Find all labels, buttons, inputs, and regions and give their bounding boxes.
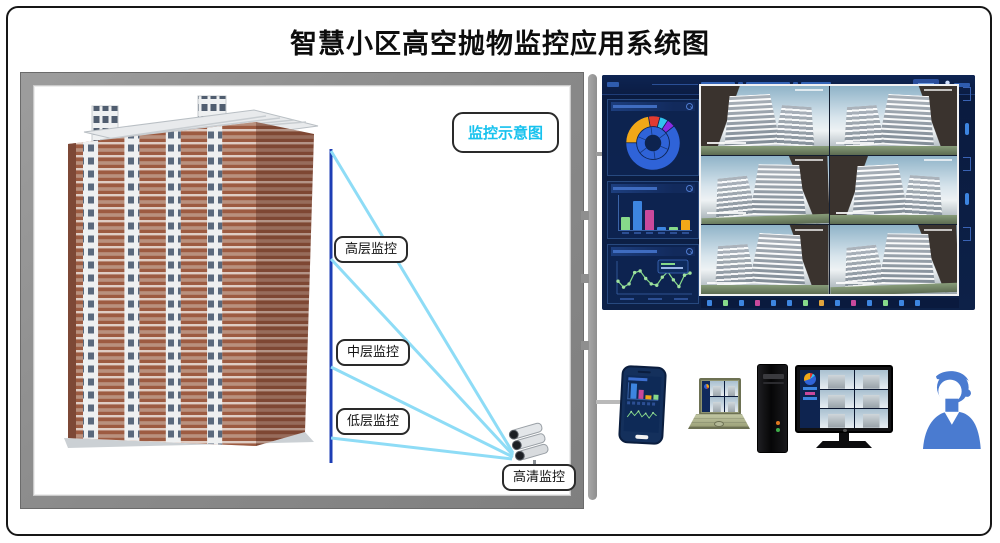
bar-chart-bars (618, 195, 692, 231)
connector-line-phone (596, 400, 623, 404)
camera-feed-label (836, 282, 874, 284)
monitor-power-light (843, 429, 847, 432)
bar (633, 201, 642, 230)
phone-line-chart (626, 406, 658, 424)
camera-feed[interactable] (701, 225, 829, 294)
toolbar-icon[interactable] (787, 300, 792, 306)
bar (645, 210, 654, 230)
phone-bar-chart (627, 382, 659, 401)
connector-nub (581, 274, 589, 283)
toolbar-icon[interactable] (739, 300, 744, 306)
beam-label-mid: 中层监控 (336, 339, 410, 366)
monitoring-dashboard (602, 75, 975, 310)
page-title: 智慧小区高空抛物监控应用系统图 (0, 22, 1000, 61)
laptop-camera-grid (710, 381, 738, 412)
camera-feed-timestamp (924, 159, 952, 161)
tower-vent (763, 382, 784, 384)
connector-nub (581, 341, 589, 350)
laptop-icon (688, 378, 750, 432)
camera-feed-timestamp (795, 159, 823, 161)
camera-feed-timestamp (795, 89, 823, 91)
camera-label-hd: 高清监控 (502, 464, 576, 491)
tower-drive-slot (763, 374, 784, 379)
operator-avatar (917, 367, 983, 449)
camera-feed-label (707, 212, 745, 214)
poster-canvas: 智慧小区高空抛物监控应用系统图 (0, 0, 1000, 543)
magnifier-icon[interactable] (686, 185, 693, 192)
monitor-base (816, 441, 872, 448)
camera-feed-label (707, 142, 745, 144)
schematic-panel: 监控示意图 高层监控 中层监控 低层监控 高清监控 (33, 85, 571, 496)
line-chart-svg (610, 258, 696, 302)
phone-home-button (635, 435, 648, 440)
monitor-camera-grid (820, 370, 888, 428)
beam-label-high: 高层监控 (334, 236, 408, 263)
bar (669, 227, 678, 231)
toolbar-icon[interactable] (835, 300, 840, 306)
monitor-frame (795, 365, 893, 433)
toolbar-icon[interactable] (867, 300, 872, 306)
connector-nub (581, 211, 589, 220)
phone-screen (624, 375, 662, 433)
camera-feed-label (836, 142, 874, 144)
toolbar-icon[interactable] (803, 300, 808, 306)
magnifier-icon[interactable] (686, 103, 693, 110)
bar (681, 220, 690, 231)
bar (621, 217, 630, 230)
toolbar-icon[interactable] (883, 300, 888, 306)
toolbar-icon[interactable] (899, 300, 904, 306)
camera-feed-timestamp (924, 89, 952, 91)
bar-chart-panel (607, 181, 699, 239)
camera-feed-timestamp (795, 229, 823, 231)
toolbar-icon[interactable] (771, 300, 776, 306)
dashboard-sidebar (607, 99, 699, 304)
magnifier-icon[interactable] (686, 248, 693, 255)
toolbar-icon[interactable] (819, 300, 824, 306)
camera-feed[interactable] (701, 156, 829, 225)
phone-speaker (638, 371, 651, 374)
dashboard-right-strip (961, 87, 973, 293)
ring-chart-svg (621, 113, 685, 175)
camera-feed-label (836, 212, 874, 214)
toolbar-icon[interactable] (707, 300, 712, 306)
camera-feed-timestamp (924, 229, 952, 231)
monitor-ring-chart (804, 373, 816, 385)
camera-feed[interactable] (830, 156, 958, 225)
camera-feed[interactable] (701, 86, 829, 155)
toolbar-icon[interactable] (851, 300, 856, 306)
monitor-stand (839, 433, 849, 441)
monitor-icon (795, 365, 893, 447)
tower-led-orange (776, 421, 780, 425)
beam-label-low: 低层监控 (336, 408, 410, 435)
camera-feed[interactable] (830, 86, 958, 155)
laptop-ring-chart (704, 384, 709, 389)
toolbar-icon[interactable] (915, 300, 920, 306)
camera-feed[interactable] (830, 225, 958, 294)
line-chart-panel (607, 244, 699, 304)
camera-feed-label (707, 282, 745, 284)
laptop-screen (699, 378, 741, 415)
schematic-badge: 监控示意图 (452, 112, 559, 153)
toolbar-icon[interactable] (755, 300, 760, 306)
camera-grid (699, 84, 959, 296)
server-tower-icon (757, 364, 788, 453)
ring-chart-panel (607, 99, 699, 176)
monitor-mini-sidebar (800, 370, 820, 428)
monitor-screen (800, 370, 888, 428)
smartphone-icon (618, 365, 667, 445)
bar (657, 227, 666, 230)
connector-bus (588, 74, 597, 500)
tower-led-green (776, 428, 780, 432)
laptop-trackpad (714, 421, 724, 427)
dashboard-toolbar (701, 298, 959, 308)
schematic-panel-frame: 监控示意图 高层监控 中层监控 低层监控 高清监控 (20, 72, 584, 509)
toolbar-icon[interactable] (723, 300, 728, 306)
